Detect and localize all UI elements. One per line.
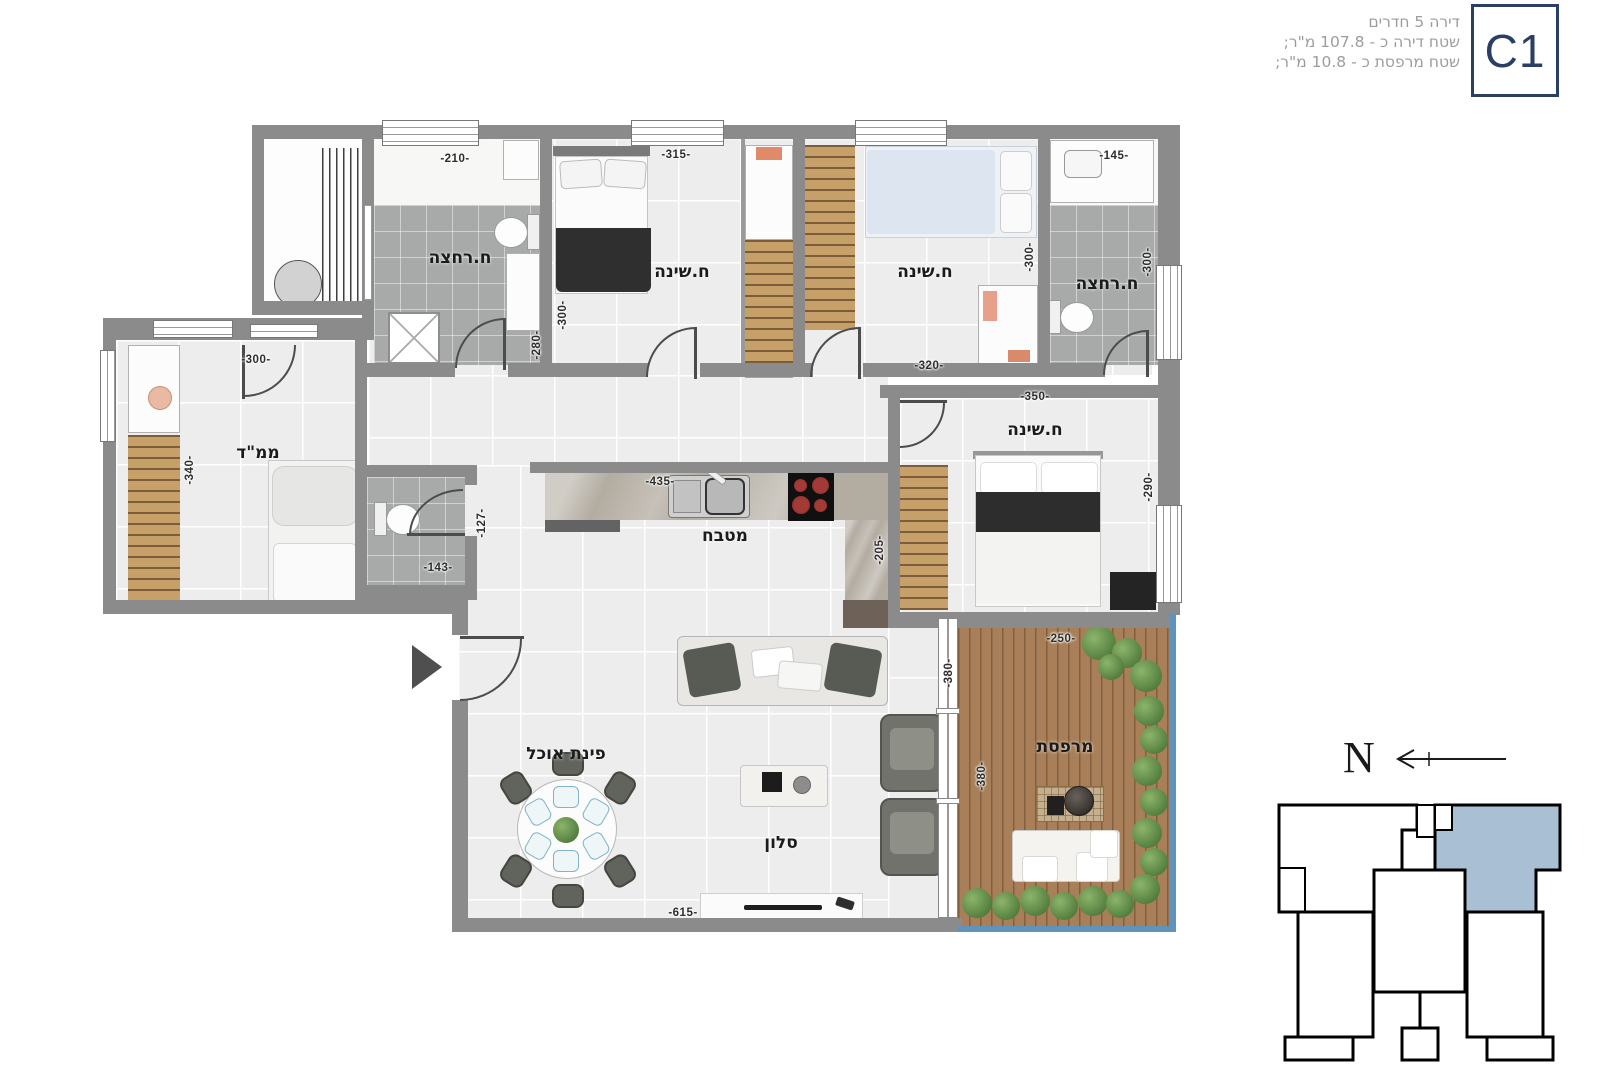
- dim-bath2-width: -145-: [1099, 150, 1128, 162]
- outdoor-cushion: [1090, 830, 1118, 858]
- bed-duvet: [976, 532, 1100, 604]
- window: [250, 324, 318, 338]
- table-centerpiece: [553, 817, 579, 843]
- coffee-table: [740, 765, 828, 807]
- balcony-railing: [958, 926, 1176, 932]
- window-sill: [936, 708, 960, 714]
- bed-blanket: [976, 492, 1100, 532]
- floorplan-page: ח.רחצה ח.שינה ח.שינה ח.רחצה ממ"ד מטבח ח.…: [0, 0, 1600, 1067]
- dim-bath1-height: -280-: [531, 330, 543, 359]
- tv-cabinet: [1110, 572, 1156, 610]
- sofa-cushion-dark: [823, 642, 883, 698]
- wall-segment: [362, 363, 455, 377]
- toilet-bowl: [494, 217, 528, 248]
- wall-segment: [465, 477, 477, 485]
- plant: [992, 892, 1020, 920]
- kitchen-end-cabinet: [843, 600, 890, 628]
- plant: [1140, 726, 1168, 754]
- bed-blanket: [556, 228, 651, 292]
- wardrobe: [128, 435, 180, 605]
- wall-segment: [452, 600, 468, 635]
- wall-segment: [863, 363, 1105, 377]
- north-arrow: N: [1325, 722, 1525, 784]
- wall-segment: [700, 363, 813, 377]
- north-letter: N: [1343, 733, 1375, 782]
- plant: [1130, 874, 1160, 904]
- burner: [814, 499, 827, 512]
- window: [382, 120, 479, 146]
- wardrobe: [745, 240, 793, 378]
- building-keyplan: [1255, 790, 1565, 1065]
- wall-segment: [793, 138, 805, 375]
- dim-bed2-width: -320-: [914, 360, 943, 372]
- bed-blanket: [867, 150, 995, 234]
- dim-mamad-width: -300-: [241, 354, 270, 366]
- room-label-bed1: ח.שינה: [654, 262, 709, 282]
- wardrobe: [805, 145, 855, 330]
- bed-pillow: [980, 462, 1037, 494]
- sofa-pillow: [777, 660, 823, 692]
- room-label-master: ח.שינה: [1007, 420, 1062, 440]
- armchair-pillow: [890, 728, 934, 770]
- closet-item: [756, 147, 782, 160]
- bed-pillow: [1000, 151, 1032, 191]
- window: [153, 320, 233, 338]
- toilet-bowl: [1060, 302, 1094, 333]
- plant: [1098, 654, 1124, 680]
- header-line-area: שטח דירה כ - 107.8 מ"ר;: [1275, 32, 1460, 52]
- louver-screen: [322, 148, 360, 305]
- wall-segment: [355, 585, 477, 600]
- header-info: דירה 5 חדרים שטח דירה כ - 107.8 מ"ר; שטח…: [1275, 12, 1460, 72]
- plant: [1132, 756, 1162, 786]
- unit-code-text: C1: [1485, 24, 1546, 78]
- entrance-arrow-icon: [412, 645, 442, 689]
- bed-headboard: [553, 146, 650, 156]
- bed-pillow: [559, 159, 603, 190]
- plant: [1132, 818, 1162, 848]
- room-label-balcony: מרפסת: [1037, 737, 1094, 757]
- bed-pillow: [603, 159, 647, 190]
- dim-wc-width: -143-: [423, 562, 452, 574]
- plant: [1020, 886, 1050, 916]
- room-label-bed2: ח.שינה: [897, 262, 952, 282]
- unit-code-badge: C1: [1471, 4, 1559, 97]
- outdoor-table: [1064, 786, 1094, 816]
- plant: [1140, 848, 1168, 876]
- wall-bottom: [452, 918, 962, 932]
- plant: [962, 888, 992, 918]
- window-slit: [364, 205, 372, 300]
- sofa-cushion-dark: [682, 642, 742, 698]
- wall-mamad-bottom: [103, 600, 463, 614]
- wall-segment: [888, 398, 900, 612]
- room-label-dining: פינת אוכל: [526, 744, 606, 764]
- wall-segment: [358, 465, 477, 477]
- dim-kitchen-depth: -205-: [874, 535, 886, 564]
- bed-pillow: [273, 543, 357, 603]
- dresser-item: [983, 291, 997, 321]
- shower-tray: [388, 312, 440, 364]
- wall-segment: [465, 536, 477, 588]
- plant: [1078, 886, 1108, 916]
- coffee-table-tray: [762, 772, 782, 792]
- basin: [1064, 150, 1102, 178]
- dim-bath2-height: -300-: [1142, 247, 1154, 276]
- room-label-mamad: ממ"ד: [236, 443, 279, 463]
- bed-pillow: [1000, 193, 1032, 233]
- dim-bath1-width: -210-: [440, 153, 469, 165]
- desk-chair: [148, 386, 172, 410]
- burner: [794, 479, 807, 492]
- wardrobe: [900, 465, 948, 610]
- toilet-tank: [527, 214, 540, 250]
- header-line-balcony: שטח מרפסת כ - 10.8 מ"ר;: [1275, 52, 1460, 72]
- plant: [1130, 660, 1162, 692]
- dim-kitchen-width: -435-: [645, 476, 674, 488]
- wall-mamad-top: [103, 318, 368, 340]
- plant: [1140, 788, 1168, 816]
- wall-segment: [1038, 138, 1050, 375]
- floor-corridor: [368, 375, 888, 465]
- sink-basin-left: [673, 480, 701, 513]
- wall-segment: [452, 700, 468, 918]
- coffee-table-bowl: [793, 776, 811, 794]
- dim-bed1-height: -300-: [557, 300, 569, 329]
- balcony-railing: [1170, 614, 1176, 932]
- plant: [1134, 696, 1164, 726]
- wall-kitchen-back: [530, 462, 890, 473]
- dim-master-width: -350-: [1020, 391, 1049, 403]
- bath1-shelf: [503, 140, 539, 180]
- dim-mamad-height: -340-: [184, 455, 196, 484]
- dining-chair: [552, 884, 584, 908]
- dim-living-width: -615-: [668, 907, 697, 919]
- armchair-pillow: [890, 812, 934, 854]
- bath1-vanity: [506, 253, 540, 331]
- plant: [1106, 890, 1134, 918]
- burner: [812, 477, 829, 494]
- wall-segment: [252, 301, 374, 315]
- outdoor-cushion: [1022, 856, 1058, 882]
- header-line-apartment: דירה 5 חדרים: [1275, 12, 1460, 32]
- dim-living-window: -380-: [943, 658, 955, 687]
- wall-segment: [508, 363, 648, 377]
- burner: [792, 496, 810, 514]
- room-label-bath2: ח.רחצה: [1076, 274, 1139, 294]
- wall-segment: [252, 125, 264, 315]
- plate: [553, 786, 579, 808]
- window-sill: [936, 798, 960, 804]
- outdoor-tray: [1047, 796, 1064, 815]
- bed-pillow: [1041, 462, 1098, 494]
- dresser-item: [1008, 350, 1030, 362]
- sink-basin-right: [705, 478, 745, 515]
- bed-duvet: [272, 466, 358, 526]
- window: [631, 120, 724, 146]
- dim-balcony-height: -380-: [976, 761, 988, 790]
- window: [100, 350, 116, 442]
- dim-wc-height: -127-: [476, 508, 488, 537]
- tv-screen: [744, 905, 822, 910]
- wall-balcony-top: [888, 612, 1172, 628]
- window: [855, 120, 947, 146]
- dim-bed1-width: -315-: [661, 149, 690, 161]
- plant: [1050, 892, 1078, 920]
- dim-master-height: -290-: [1143, 472, 1155, 501]
- room-label-bath1: ח.רחצה: [429, 248, 492, 268]
- room-label-kitchen: מטבח: [702, 526, 748, 546]
- room-label-living: סלון: [764, 833, 798, 853]
- window: [1156, 505, 1182, 603]
- dim-balcony-width: -250-: [1046, 633, 1075, 645]
- dim-bed2-height: -300-: [1024, 242, 1036, 271]
- plate: [553, 850, 579, 872]
- window: [1156, 265, 1182, 360]
